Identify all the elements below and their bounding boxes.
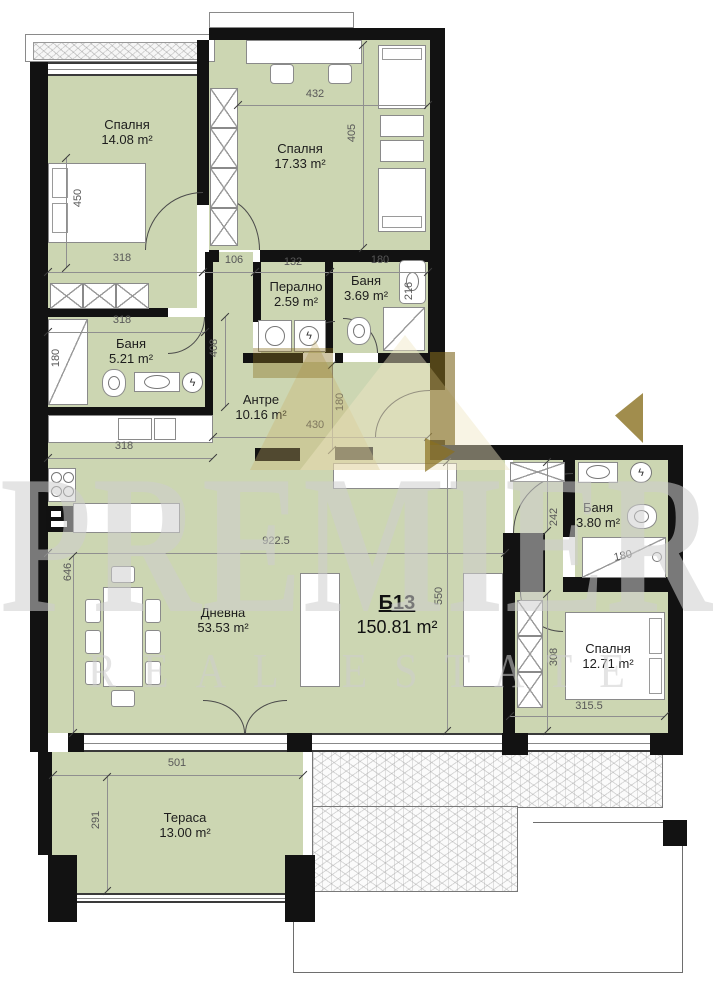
nightstand [380,115,424,137]
nightstand [380,140,424,162]
brand-logo-icon [615,393,643,443]
dishwasher [154,418,176,440]
dimension-label: 315.5 [575,700,603,712]
brand-logo-icon [253,348,333,378]
pillow [649,618,662,654]
dimension-label: 432 [306,88,324,100]
dimension-label: 318 [115,440,133,452]
dimension-line [255,272,330,273]
dimension-line [238,105,428,106]
wardrobe [83,283,116,309]
slab-edge-line [293,920,294,973]
wall [38,752,52,855]
brand-logo-icon [430,352,455,445]
room-area: 3.80 m² [576,515,620,530]
dimension-line [48,332,205,333]
room-area: 17.33 m² [274,156,325,171]
wall [48,308,168,317]
stove-burner-icon [63,472,74,483]
wall [30,62,48,308]
dimension-label: 180 [371,254,389,266]
pillow [382,216,422,228]
dimension-line [66,158,67,268]
chair [270,64,294,84]
floor-plan: ϟ ϟ ϟ 4 [0,0,713,1000]
dimension-line [203,272,255,273]
wall [503,533,545,577]
room-label-bathroom-2: Баня5.21 m² [109,336,153,366]
chair [145,661,161,685]
stove-burner-icon [51,472,62,483]
dimension-label: 646 [62,563,74,581]
chair [85,599,101,623]
unit-label: Б13 150.81 m² [356,592,437,638]
room-area: 2.59 m² [269,294,322,309]
wall-column [285,855,315,922]
wall-column [663,820,687,846]
fridge [46,506,73,532]
dimension-line [447,462,448,731]
wall [430,28,445,262]
wall [30,415,48,752]
kitchen-island [73,503,180,533]
dimension-label: 501 [168,757,186,769]
room-area: 13.00 m² [159,825,210,840]
dimension-label: 318 [113,252,131,264]
sofa [300,573,340,687]
dimension-label: 450 [72,189,84,207]
unit-code: Б13 [356,592,437,615]
stove [48,468,76,502]
room-label-bedroom-2: Спалня17.33 m² [274,141,325,171]
dimension-label: 291 [90,811,102,829]
room-label-bathroom-3: Баня3.80 m² [576,500,620,530]
wardrobe [50,283,83,309]
dimension-line [73,556,74,733]
chair [85,630,101,654]
hall-closet [510,462,565,482]
chair [328,64,352,84]
sink-basin-icon [144,375,170,389]
wall [650,733,683,755]
dimension-line [48,272,203,273]
desk [246,40,362,64]
dimension-line [363,45,364,248]
unit-total-area: 150.81 m² [356,617,437,638]
wall [30,407,213,415]
room-area: 12.71 m² [582,656,633,671]
sink-basin-icon [586,465,610,479]
balcony-outline-top-right [209,12,354,28]
room-name: Дневна [197,605,248,620]
wall [668,583,683,733]
room-name: Баня [344,273,388,288]
toilet-bowl-icon [108,376,120,390]
stone-patio-upper [312,750,663,808]
wardrobe [210,208,238,246]
wall [502,733,528,755]
water-heater-icon: ϟ [182,372,203,393]
wardrobe [210,128,238,168]
window-bedroom-1 [48,62,197,76]
room-label-bathroom-1: Баня3.69 m² [344,273,388,303]
chair [145,599,161,623]
kitchen-sink [118,418,152,440]
wall [30,308,48,407]
wall-column [48,855,77,922]
stove-burner-icon [63,486,74,497]
chair [111,566,135,583]
wall [197,40,209,205]
pillow [649,658,662,694]
wardrobe [517,600,543,636]
dimension-line [48,553,505,554]
washing-machine-drum-icon [265,326,285,346]
wardrobe [517,636,543,672]
toilet-bowl-icon [634,510,649,523]
shower-drain-icon [652,552,662,562]
room-name: Перално [269,279,322,294]
pillow [382,48,422,60]
water-heater-icon: ϟ [630,462,652,483]
window-bedroom-3 [528,733,663,752]
toilet-bowl-icon [353,324,365,338]
balcony-ledge-hatch [33,42,207,60]
room-name: Спалня [101,117,152,132]
chair [111,690,135,707]
dimension-line [48,458,213,459]
slab-edge-line [293,972,683,973]
wall [503,577,545,592]
stove-burner-icon [51,486,62,497]
wardrobe [116,283,149,309]
sofa [463,573,503,687]
dimension-label: 405 [346,124,358,142]
dimension-label: 922.5 [262,535,290,547]
room-area: 53.53 m² [197,620,248,635]
room-label-laundry: Перално2.59 m² [269,279,322,309]
dimension-line [510,716,665,717]
wall [668,460,683,577]
room-area: 14.08 m² [101,132,152,147]
wall [205,252,213,415]
dimension-label: 318 [113,314,131,326]
stone-patio-lower [312,806,518,892]
dimension-line [107,777,108,891]
wall [428,262,445,362]
room-name: Тераса [159,810,210,825]
room-area: 3.69 m² [344,288,388,303]
wardrobe [517,672,543,708]
dimension-label: 242 [548,508,560,526]
room-name: Антре [235,392,286,407]
dimension-label: 132 [284,256,302,268]
dimension-label: 408 [208,339,220,357]
room-name: Спалня [274,141,325,156]
room-label-terrace: Тераса13.00 m² [159,810,210,840]
room-name: Баня [109,336,153,351]
chair [85,661,101,685]
room-name: Спалня [582,641,633,656]
dimension-label: 216 [403,282,415,300]
wall [287,733,312,752]
dining-table [103,587,143,687]
room-label-living-room: Дневна53.53 m² [197,605,248,635]
room-label-bedroom-1: Спалня14.08 m² [101,117,152,147]
room-name: Баня [576,500,620,515]
slab-edge-line [533,822,683,823]
dimension-label: 106 [225,254,243,266]
wall [209,28,445,40]
dimension-label: 308 [548,648,560,666]
chair [145,630,161,654]
dimension-line [225,317,226,407]
room-fill-passage-door [545,533,563,592]
dimension-label: 180 [50,349,62,367]
dimension-line [53,775,303,776]
room-label-bedroom-3: Спалня12.71 m² [582,641,633,671]
room-area: 5.21 m² [109,351,153,366]
wardrobe [210,168,238,208]
wall [563,577,683,592]
terrace-railing [53,893,305,903]
